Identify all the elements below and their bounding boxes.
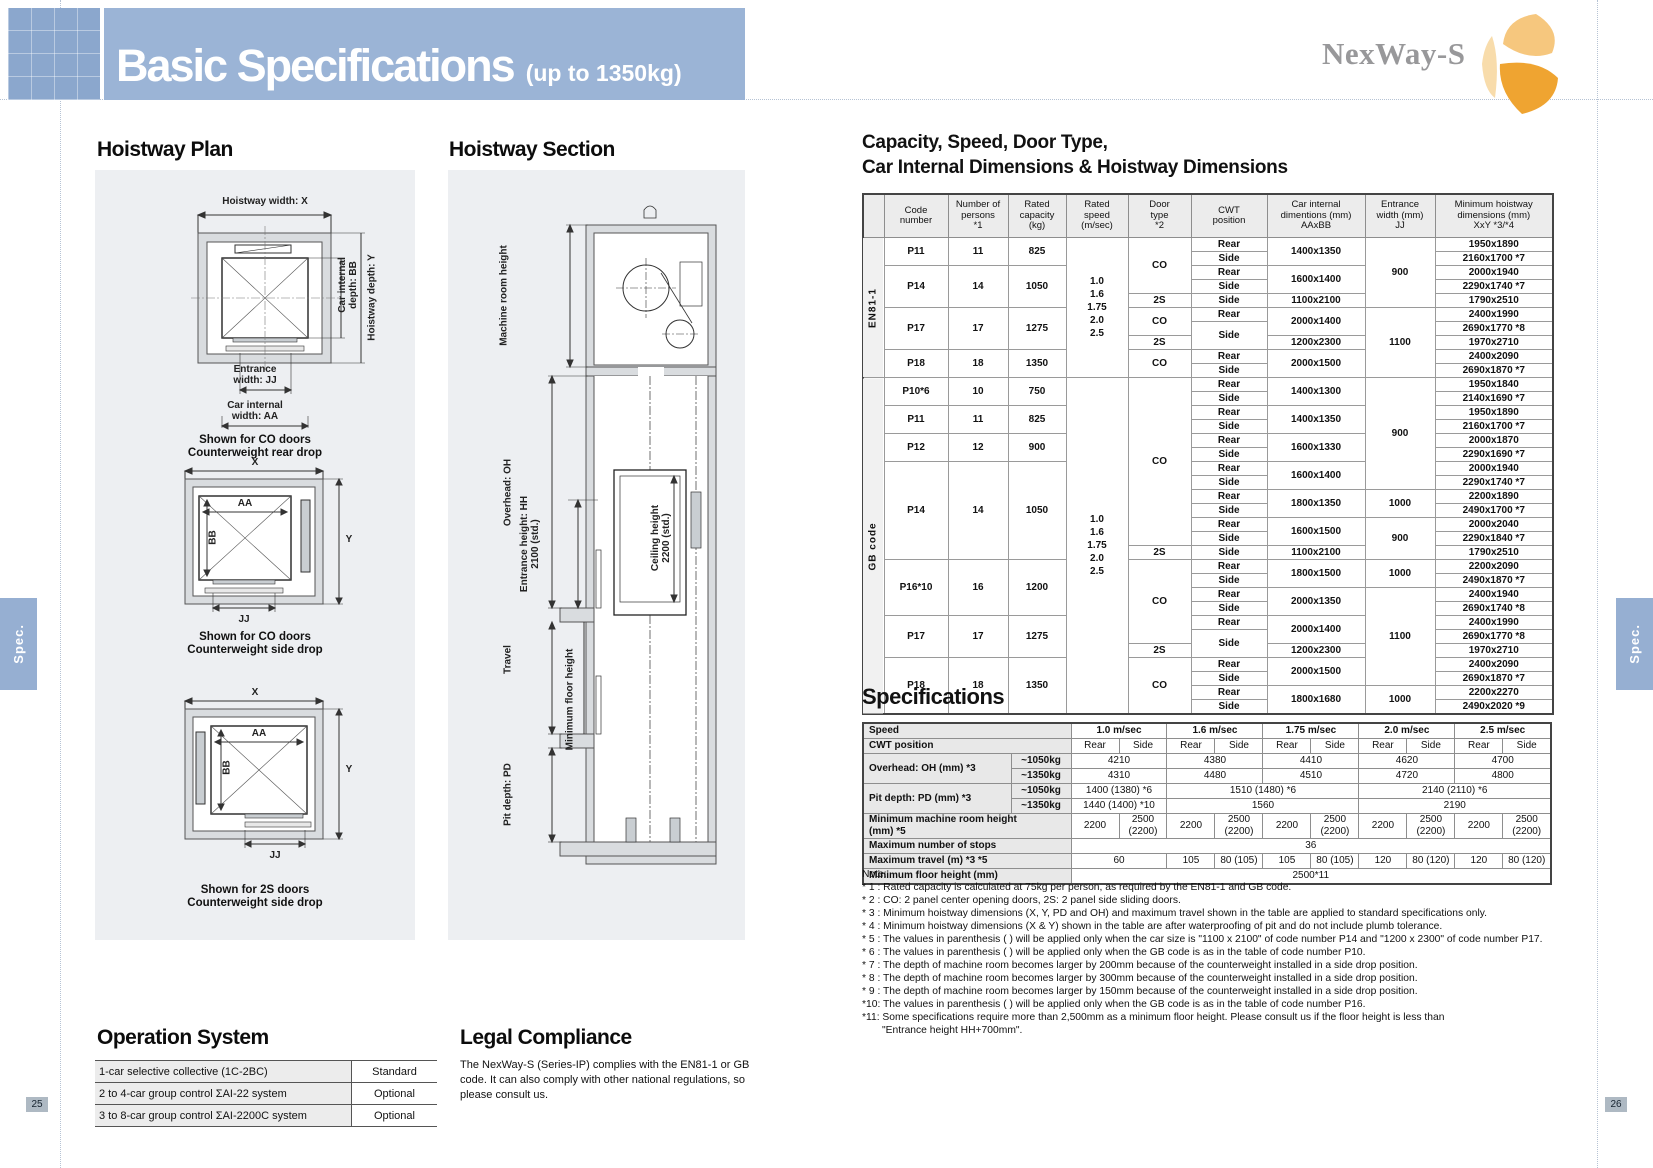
plan1-entrance-width-label: Entrance width: JJ: [205, 364, 305, 386]
table-cell: 2140x1690 *7: [1435, 392, 1553, 406]
table-cell: 2500 (2200): [1311, 814, 1359, 839]
table-cell: 2490x2020 *9: [1435, 700, 1553, 715]
table-cell: 750: [1008, 378, 1066, 406]
table-cell: 1790x2510: [1435, 546, 1553, 560]
capacity-table: Code numberNumber of persons *1Rated cap…: [862, 193, 1554, 715]
table-cell: ~1350kg: [1011, 769, 1071, 784]
table-row: P17171275CORear2000x140011002400x1990: [863, 308, 1553, 322]
list-item: *10: The values in parenthesis ( ) will …: [862, 998, 1562, 1011]
section-min-floor-height-label: Minimum floor height: [565, 635, 576, 765]
table-cell: P14: [884, 462, 948, 560]
list-item: * 8 : The depth of machine room becomes …: [862, 972, 1562, 985]
table-cell: 11: [948, 406, 1008, 434]
table-cell: 1050: [1008, 266, 1066, 308]
table-row: CWT positionRearSideRearSideRearSideRear…: [863, 739, 1551, 754]
table-cell: Overhead: OH (mm) *3: [863, 754, 1011, 784]
table-cell: CO: [1128, 658, 1191, 715]
table-cell: 1100x2100: [1267, 546, 1365, 560]
table-cell: 2290x1690 *7: [1435, 448, 1553, 462]
table-cell: Standard: [352, 1061, 438, 1083]
table-cell: 1050: [1008, 462, 1066, 560]
table-cell: 1950x1840: [1435, 378, 1553, 392]
table-cell: 120: [1455, 854, 1503, 869]
table-cell: 14: [948, 266, 1008, 308]
hoistway-plan-heading: Hoistway Plan: [97, 138, 233, 162]
operation-system-table: 1-car selective collective (1C-2BC)Stand…: [95, 1060, 437, 1127]
table-row: Maximum travel (m) *3 *56010580 (105)105…: [863, 854, 1551, 869]
table-cell: CO: [1128, 560, 1191, 644]
table-row: P14141050Rear1600x14002000x1940: [863, 266, 1553, 280]
hoistway-section-diagram: [448, 170, 745, 940]
table-cell: Pit depth: PD (mm) *3: [863, 784, 1011, 814]
table-row: P18181350CORear2000x15002400x2090: [863, 658, 1553, 672]
section-pit-depth-label: Pit depth: PD: [503, 749, 514, 841]
plan3-caption: Shown for 2S doors Counterweight side dr…: [135, 884, 375, 910]
header-grid-square: [8, 8, 100, 100]
table-cell: 11: [948, 238, 1008, 266]
table-cell: 10: [948, 378, 1008, 406]
table-cell: 2400x1990: [1435, 308, 1553, 322]
table-cell: 2000x1400: [1267, 308, 1365, 336]
list-item: * 9 : The depth of machine room becomes …: [862, 985, 1562, 998]
table-cell: Entrance width (mm) JJ: [1365, 194, 1435, 238]
table-cell: Side: [1191, 322, 1267, 350]
legal-compliance-heading: Legal Compliance: [460, 1026, 632, 1050]
table-cell: 2690x1770 *8: [1435, 322, 1553, 336]
capacity-heading-line2: Car Internal Dimensions & Hoistway Dimen…: [862, 157, 1288, 179]
hoistway-section-heading: Hoistway Section: [449, 138, 615, 162]
section-ceiling-height-label: Ceiling height 2200 (std.): [650, 488, 672, 588]
brand-pinwheel-icon: [1448, 6, 1568, 118]
table-row: Speed1.0 m/sec1.6 m/sec1.75 m/sec2.0 m/s…: [863, 723, 1551, 739]
capacity-heading-line1: Capacity, Speed, Door Type,: [862, 132, 1108, 154]
table-cell: Side: [1407, 739, 1455, 754]
table-cell: 2500 (2200): [1215, 814, 1263, 839]
table-cell: 1790x2510: [1435, 294, 1553, 308]
table-cell: 1800x1680: [1267, 686, 1365, 715]
table-cell: Rated speed (m/sec): [1066, 194, 1128, 238]
table-cell: Rear: [1167, 739, 1215, 754]
table-cell: 1400x1350: [1267, 406, 1365, 434]
table-cell: 1400 (1380) *6: [1071, 784, 1167, 799]
table-cell: 2000x1940: [1435, 462, 1553, 476]
table-cell: Rear: [1191, 518, 1267, 532]
table-cell: Side: [1191, 280, 1267, 294]
table-cell: Rear: [1191, 616, 1267, 630]
table-cell: 1560: [1167, 799, 1359, 814]
list-item: *11: Some specifications require more th…: [862, 1011, 1562, 1037]
table-cell: 2000x1940: [1435, 266, 1553, 280]
plan3-bb-label: BB: [222, 756, 233, 780]
table-cell: Rear: [1191, 350, 1267, 364]
table-cell: 2500 (2200): [1119, 814, 1167, 839]
table-cell: 2490x1700 *7: [1435, 504, 1553, 518]
table-cell: 18: [948, 350, 1008, 378]
table-cell: 4380: [1167, 754, 1263, 769]
table-cell: P17: [884, 616, 948, 658]
table-cell: 2200x2090: [1435, 560, 1553, 574]
table-cell: 1100: [1365, 588, 1435, 686]
table-cell: Side: [1191, 392, 1267, 406]
table-cell: 17: [948, 308, 1008, 350]
plan1-car-internal-width-label: Car internal width: AA: [205, 400, 305, 422]
list-item: * 4 : Minimum hoistway dimensions (X & Y…: [862, 920, 1562, 933]
table-cell: 2160x1700 *7: [1435, 252, 1553, 266]
list-item: * 5 : The values in parenthesis ( ) will…: [862, 933, 1562, 946]
table-cell: 2490x1870 *7: [1435, 574, 1553, 588]
table-cell: 825: [1008, 238, 1066, 266]
table-cell: 2 to 4-car group control ΣAI-22 system: [95, 1083, 352, 1105]
table-cell: 80 (105): [1215, 854, 1263, 869]
table-cell: P17: [884, 308, 948, 350]
table-cell: 2290x1740 *7: [1435, 280, 1553, 294]
table-cell: 1600x1400: [1267, 462, 1365, 490]
plan2-y-label: Y: [337, 534, 361, 545]
plan3-x-label: X: [235, 687, 275, 698]
table-cell: 1.6 m/sec: [1167, 723, 1263, 739]
table-cell: 2200: [1359, 814, 1407, 839]
table-cell: Side: [1503, 739, 1551, 754]
plan3-aa-label: AA: [241, 728, 277, 739]
table-cell: 1800x1350: [1267, 490, 1365, 518]
table-cell: 1970x2710: [1435, 336, 1553, 350]
section-travel-label: Travel: [503, 630, 514, 690]
table-cell: 1600x1400: [1267, 266, 1365, 294]
header-band: Basic Specifications (up to 1350kg): [104, 8, 745, 100]
table-cell: ~1050kg: [1011, 754, 1071, 769]
table-cell: Rear: [1191, 266, 1267, 280]
table-cell: 1100: [1365, 308, 1435, 378]
table-cell: 2200: [1263, 814, 1311, 839]
table-cell: 3 to 8-car group control ΣAI-2200C syste…: [95, 1105, 352, 1127]
table-cell: 2400x2090: [1435, 658, 1553, 672]
table-cell: 4310: [1071, 769, 1167, 784]
table-cell: 1400x1300: [1267, 378, 1365, 406]
table-cell: 36: [1071, 839, 1551, 854]
table-cell: 2200x1890: [1435, 490, 1553, 504]
table-cell: 1.0 m/sec: [1071, 723, 1167, 739]
table-cell: Side: [1191, 630, 1267, 658]
table-cell: 2000x1350: [1267, 588, 1365, 616]
table-cell: Number of persons *1: [948, 194, 1008, 238]
table-row: EN81-1P11118251.0 1.6 1.75 2.0 2.5CORear…: [863, 238, 1553, 252]
table-cell: CO: [1128, 350, 1191, 378]
table-cell: 1200x2300: [1267, 644, 1365, 658]
plan3-y-label: Y: [337, 764, 361, 775]
table-cell: 60: [1071, 854, 1167, 869]
table-cell: 4720: [1359, 769, 1455, 784]
table-cell: 1400x1350: [1267, 238, 1365, 266]
table-cell: Rear: [1191, 560, 1267, 574]
table-cell: 1275: [1008, 308, 1066, 350]
table-cell: Maximum travel (m) *3 *5: [863, 854, 1071, 869]
section-entrance-height-label: Entrance height: HH 2100 (std.): [519, 484, 541, 604]
table-cell: Side: [1191, 294, 1267, 308]
table-cell: [863, 194, 884, 238]
list-item: * 3 : Minimum hoistway dimensions (X, Y,…: [862, 907, 1562, 920]
table-cell: Rear: [1191, 378, 1267, 392]
table-cell: Rear: [1191, 434, 1267, 448]
table-cell: Rear: [1455, 739, 1503, 754]
table-cell: Side: [1191, 574, 1267, 588]
table-cell: 900: [1365, 518, 1435, 560]
table-cell: 2690x1870 *7: [1435, 672, 1553, 686]
table-cell: Minimum machine room height (mm) *5: [863, 814, 1071, 839]
table-cell: 4510: [1263, 769, 1359, 784]
table-cell: P10*6: [884, 378, 948, 406]
table-cell: Side: [1191, 252, 1267, 266]
table-cell: 1000: [1365, 686, 1435, 715]
table-cell: Side: [1191, 672, 1267, 686]
side-tab-label: Spec.: [11, 624, 26, 664]
table-cell: 4410: [1263, 754, 1359, 769]
table-cell: 80 (105): [1311, 854, 1359, 869]
table-cell: 4700: [1455, 754, 1551, 769]
table-cell: 4800: [1455, 769, 1551, 784]
plan2-x-label: X: [235, 457, 275, 468]
table-cell: 2290x1840 *7: [1435, 532, 1553, 546]
table-cell: 2000x2040: [1435, 518, 1553, 532]
table-cell: 1.75 m/sec: [1263, 723, 1359, 739]
list-item: * 6 : The values in parenthesis ( ) will…: [862, 946, 1562, 959]
notes-list: * 1 : Rated capacity is calculated at 75…: [862, 881, 1562, 1037]
table-cell: 1-car selective collective (1C-2BC): [95, 1061, 352, 1083]
table-cell: 900: [1365, 378, 1435, 490]
table-cell: CWT position: [1191, 194, 1267, 238]
table-cell: 2200: [1455, 814, 1503, 839]
table-cell: 1600x1500: [1267, 518, 1365, 546]
table-cell: 2.5 m/sec: [1455, 723, 1551, 739]
table-cell: 2S: [1128, 336, 1191, 350]
table-cell: 2200x2270: [1435, 686, 1553, 700]
table-cell: 2690x1740 *8: [1435, 602, 1553, 616]
table-row: P17171275Rear2000x14002400x1990: [863, 616, 1553, 630]
table-cell: Side: [1191, 532, 1267, 546]
table-cell: 2S: [1128, 294, 1191, 308]
table-cell: 1350: [1008, 658, 1066, 715]
table-row: Code numberNumber of persons *1Rated cap…: [863, 194, 1553, 238]
table-cell: Side: [1191, 420, 1267, 434]
table-cell: 2400x1990: [1435, 616, 1553, 630]
table-row: P1212900Rear1600x13302000x1870: [863, 434, 1553, 448]
table-cell: 4620: [1359, 754, 1455, 769]
table-cell: Side: [1191, 546, 1267, 560]
table-cell: Code number: [884, 194, 948, 238]
side-tab-spec-left: Spec.: [0, 598, 37, 690]
table-cell: Rear: [1191, 462, 1267, 476]
table-cell: P12: [884, 434, 948, 462]
table-cell: 1950x1890: [1435, 406, 1553, 420]
table-cell: 4480: [1167, 769, 1263, 784]
table-cell: 2000x1870: [1435, 434, 1553, 448]
list-item: * 7 : The depth of machine room becomes …: [862, 959, 1562, 972]
section-overhead-label: Overhead: OH: [503, 438, 514, 548]
table-cell: 1970x2710: [1435, 644, 1553, 658]
table-cell: Optional: [352, 1105, 438, 1127]
table-cell: 2S: [1128, 546, 1191, 560]
table-cell: Car internal dimentions (mm) AAxBB: [1267, 194, 1365, 238]
table-cell: Rated capacity (kg): [1008, 194, 1066, 238]
side-tab-spec-right: Spec.: [1616, 598, 1653, 690]
table-cell: 16: [948, 560, 1008, 616]
table-cell: 2400x2090: [1435, 350, 1553, 364]
table-row: Maximum number of stops36: [863, 839, 1551, 854]
table-cell: 1350: [1008, 350, 1066, 378]
table-cell: EN81-1: [863, 238, 884, 378]
table-row: 3 to 8-car group control ΣAI-2200C syste…: [95, 1105, 437, 1127]
table-cell: P14: [884, 266, 948, 308]
table-cell: 17: [948, 616, 1008, 658]
table-cell: 2190: [1359, 799, 1551, 814]
table-cell: Side: [1215, 739, 1263, 754]
table-cell: 1000: [1365, 560, 1435, 588]
table-cell: Rear: [1191, 588, 1267, 602]
legal-compliance-body: The NexWay-S (Series-IP) complies with t…: [460, 1058, 770, 1103]
table-cell: 1200: [1008, 560, 1066, 616]
table-row: P18181350CORear2000x15002400x2090: [863, 350, 1553, 364]
table-row: Pit depth: PD (mm) *3~1050kg1400 (1380) …: [863, 784, 1551, 799]
table-cell: Side: [1191, 602, 1267, 616]
table-cell: 2290x1740 *7: [1435, 476, 1553, 490]
operation-system-heading: Operation System: [97, 1026, 269, 1050]
table-cell: Side: [1191, 700, 1267, 715]
table-cell: 1000: [1365, 490, 1435, 518]
plan1-hoistway-depth-label: Hoistway depth: Y: [367, 243, 378, 353]
table-cell: 2000x1500: [1267, 350, 1365, 378]
table-cell: 80 (120): [1503, 854, 1551, 869]
table-row: P16*10161200CORear1800x150010002200x2090: [863, 560, 1553, 574]
table-cell: Door type *2: [1128, 194, 1191, 238]
plan2-aa-label: AA: [227, 498, 263, 509]
table-cell: Rear: [1359, 739, 1407, 754]
table-row: P14141050Rear1600x14002000x1940: [863, 462, 1553, 476]
table-cell: 2500 (2200): [1407, 814, 1455, 839]
table-cell: Side: [1191, 448, 1267, 462]
table-row: P1111825Rear1400x13501950x1890: [863, 406, 1553, 420]
notes-label: Note:: [862, 868, 1562, 881]
table-cell: 2160x1700 *7: [1435, 420, 1553, 434]
table-cell: Rear: [1191, 686, 1267, 700]
table-cell: 1440 (1400) *10: [1071, 799, 1167, 814]
specifications-heading: Specifications: [862, 684, 1004, 710]
notes-block: Note: * 1 : Rated capacity is calculated…: [862, 868, 1562, 1037]
table-cell: 120: [1359, 854, 1407, 869]
table-cell: P11: [884, 406, 948, 434]
table-cell: 1800x1500: [1267, 560, 1365, 588]
plan2-caption: Shown for CO doors Counterweight side dr…: [135, 631, 375, 657]
table-row: Minimum machine room height (mm) *522002…: [863, 814, 1551, 839]
table-cell: 2200: [1071, 814, 1119, 839]
table-cell: Maximum number of stops: [863, 839, 1071, 854]
page-title: Basic Specifications: [116, 42, 514, 90]
plan1-hoistway-width-label: Hoistway width: X: [170, 196, 360, 207]
table-cell: CO: [1128, 308, 1191, 336]
brand-logo-text: NexWay-S: [1322, 36, 1466, 72]
table-cell: 105: [1167, 854, 1215, 869]
table-cell: Rear: [1263, 739, 1311, 754]
table-cell: ~1350kg: [1011, 799, 1071, 814]
plan2-bb-label: BB: [208, 526, 219, 550]
table-row: 2 to 4-car group control ΣAI-22 systemOp…: [95, 1083, 437, 1105]
page-subtitle: (up to 1350kg): [526, 56, 682, 90]
table-cell: 4210: [1071, 754, 1167, 769]
page-number-left: 25: [26, 1097, 48, 1112]
guide-line-vertical-left: [60, 0, 61, 1168]
table-cell: 900: [1008, 434, 1066, 462]
table-cell: 1100x2100: [1267, 294, 1365, 308]
table-cell: CO: [1128, 378, 1191, 546]
table-cell: 2400x1940: [1435, 588, 1553, 602]
brochure-page: Basic Specifications (up to 1350kg) NexW…: [0, 0, 1653, 1168]
table-cell: 80 (120): [1407, 854, 1455, 869]
table-cell: Minimum hoistway dimensions (mm) XxY *3/…: [1435, 194, 1553, 238]
table-cell: P16*10: [884, 560, 948, 616]
plan1-car-internal-depth-label: Car internal depth: BB: [337, 249, 359, 321]
table-cell: 2000x1400: [1267, 616, 1365, 644]
table-cell: Optional: [352, 1083, 438, 1105]
table-row: Overhead: OH (mm) *3~1050kg4210438044104…: [863, 754, 1551, 769]
table-cell: CWT position: [863, 739, 1071, 754]
table-cell: Rear: [1191, 658, 1267, 672]
table-cell: 1200x2300: [1267, 336, 1365, 350]
table-cell: ~1050kg: [1011, 784, 1071, 799]
table-cell: 105: [1263, 854, 1311, 869]
table-cell: 1275: [1008, 616, 1066, 658]
table-cell: Rear: [1191, 308, 1267, 322]
table-cell: Side: [1119, 739, 1167, 754]
list-item: * 2 : CO: 2 panel center opening doors, …: [862, 894, 1562, 907]
table-cell: Rear: [1191, 490, 1267, 504]
table-cell: P11: [884, 238, 948, 266]
table-cell: CO: [1128, 238, 1191, 294]
table-cell: Speed: [863, 723, 1071, 739]
table-cell: Rear: [1191, 406, 1267, 420]
table-cell: 1600x1330: [1267, 434, 1365, 462]
table-cell: 900: [1365, 238, 1435, 308]
table-cell: 825: [1008, 406, 1066, 434]
table-row: GB codeP10*6107501.0 1.6 1.75 2.0 2.5COR…: [863, 378, 1553, 392]
table-cell: 2690x1870 *7: [1435, 364, 1553, 378]
list-item: * 1 : Rated capacity is calculated at 75…: [862, 881, 1562, 894]
plan3-jj-label: JJ: [255, 850, 295, 861]
specifications-table: Speed1.0 m/sec1.6 m/sec1.75 m/sec2.0 m/s…: [862, 722, 1552, 885]
table-cell: 1.0 1.6 1.75 2.0 2.5: [1066, 238, 1128, 378]
table-cell: 2500 (2200): [1503, 814, 1551, 839]
table-cell: 2690x1770 *8: [1435, 630, 1553, 644]
table-cell: Side: [1191, 364, 1267, 378]
table-cell: Side: [1191, 504, 1267, 518]
table-cell: 2S: [1128, 644, 1191, 658]
section-machine-room-height-label: Machine room height: [499, 231, 510, 361]
table-cell: Side: [1311, 739, 1359, 754]
plan2-jj-label: JJ: [224, 614, 264, 625]
guide-line-vertical-right: [1597, 0, 1598, 1168]
table-cell: P18: [884, 350, 948, 378]
table-cell: 1510 (1480) *6: [1167, 784, 1359, 799]
table-row: 1-car selective collective (1C-2BC)Stand…: [95, 1061, 437, 1083]
table-cell: Side: [1191, 476, 1267, 490]
table-cell: 2000x1500: [1267, 658, 1365, 686]
table-cell: 2200: [1167, 814, 1215, 839]
table-cell: 2.0 m/sec: [1359, 723, 1455, 739]
table-cell: Rear: [1071, 739, 1119, 754]
table-cell: 1950x1890: [1435, 238, 1553, 252]
table-cell: GB code: [863, 378, 884, 715]
page-number-right: 26: [1605, 1097, 1627, 1112]
table-cell: 1.0 1.6 1.75 2.0 2.5: [1066, 378, 1128, 715]
side-tab-label: Spec.: [1627, 624, 1642, 664]
table-cell: 2140 (2110) *6: [1359, 784, 1551, 799]
